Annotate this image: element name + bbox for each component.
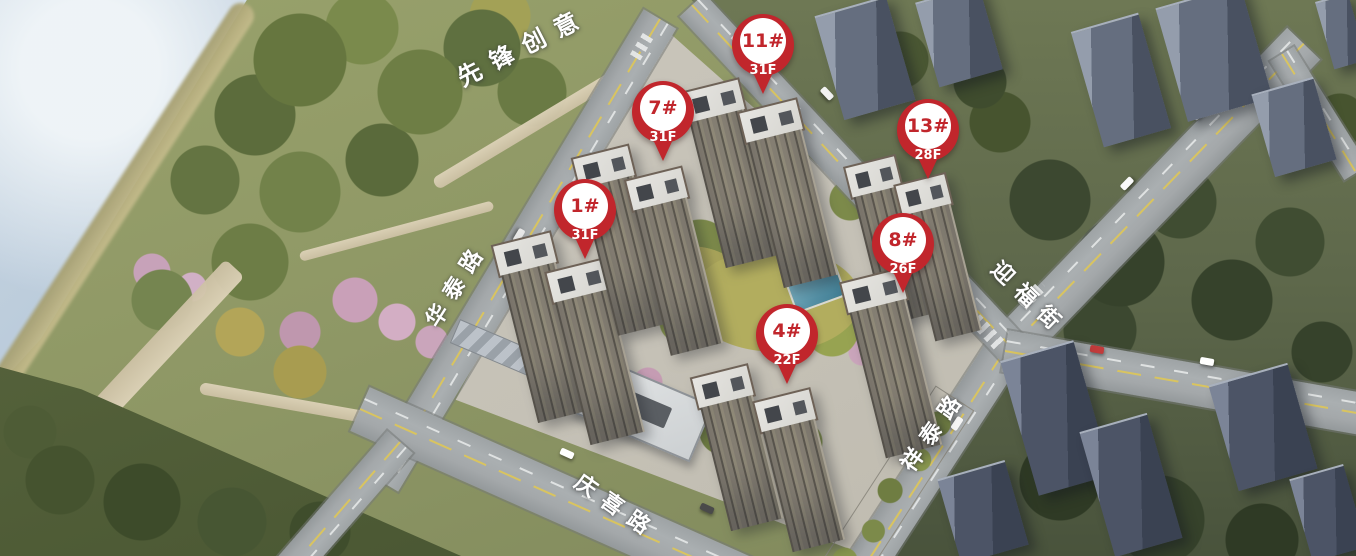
pin-floor-count: 28F	[896, 148, 960, 163]
pin-building-number: 4#	[764, 308, 810, 354]
pin-building-number: 1#	[562, 183, 608, 229]
building-pin-13[interactable]: 13# 28F	[896, 99, 960, 187]
building-pin-1[interactable]: 1# 31F	[553, 179, 617, 267]
building-pin-8[interactable]: 8# 26F	[871, 213, 935, 301]
pin-floor-count: 26F	[871, 262, 935, 277]
pin-floor-count: 22F	[755, 353, 819, 368]
site-plan-map: 先锋创意 华泰路 迎福街 祥泰路 庆喜路 11# 31F 7# 31F 13# …	[0, 0, 1356, 556]
pin-building-number: 8#	[880, 217, 926, 263]
pin-floor-count: 31F	[731, 63, 795, 78]
pin-floor-count: 31F	[631, 130, 695, 145]
building-pin-4[interactable]: 4# 22F	[755, 304, 819, 392]
pin-building-number: 11#	[740, 18, 786, 64]
building-pin-11[interactable]: 11# 31F	[731, 14, 795, 102]
pin-building-number: 7#	[640, 85, 686, 131]
pin-floor-count: 31F	[553, 228, 617, 243]
pin-building-number: 13#	[905, 103, 951, 149]
building-pin-7[interactable]: 7# 31F	[631, 81, 695, 169]
